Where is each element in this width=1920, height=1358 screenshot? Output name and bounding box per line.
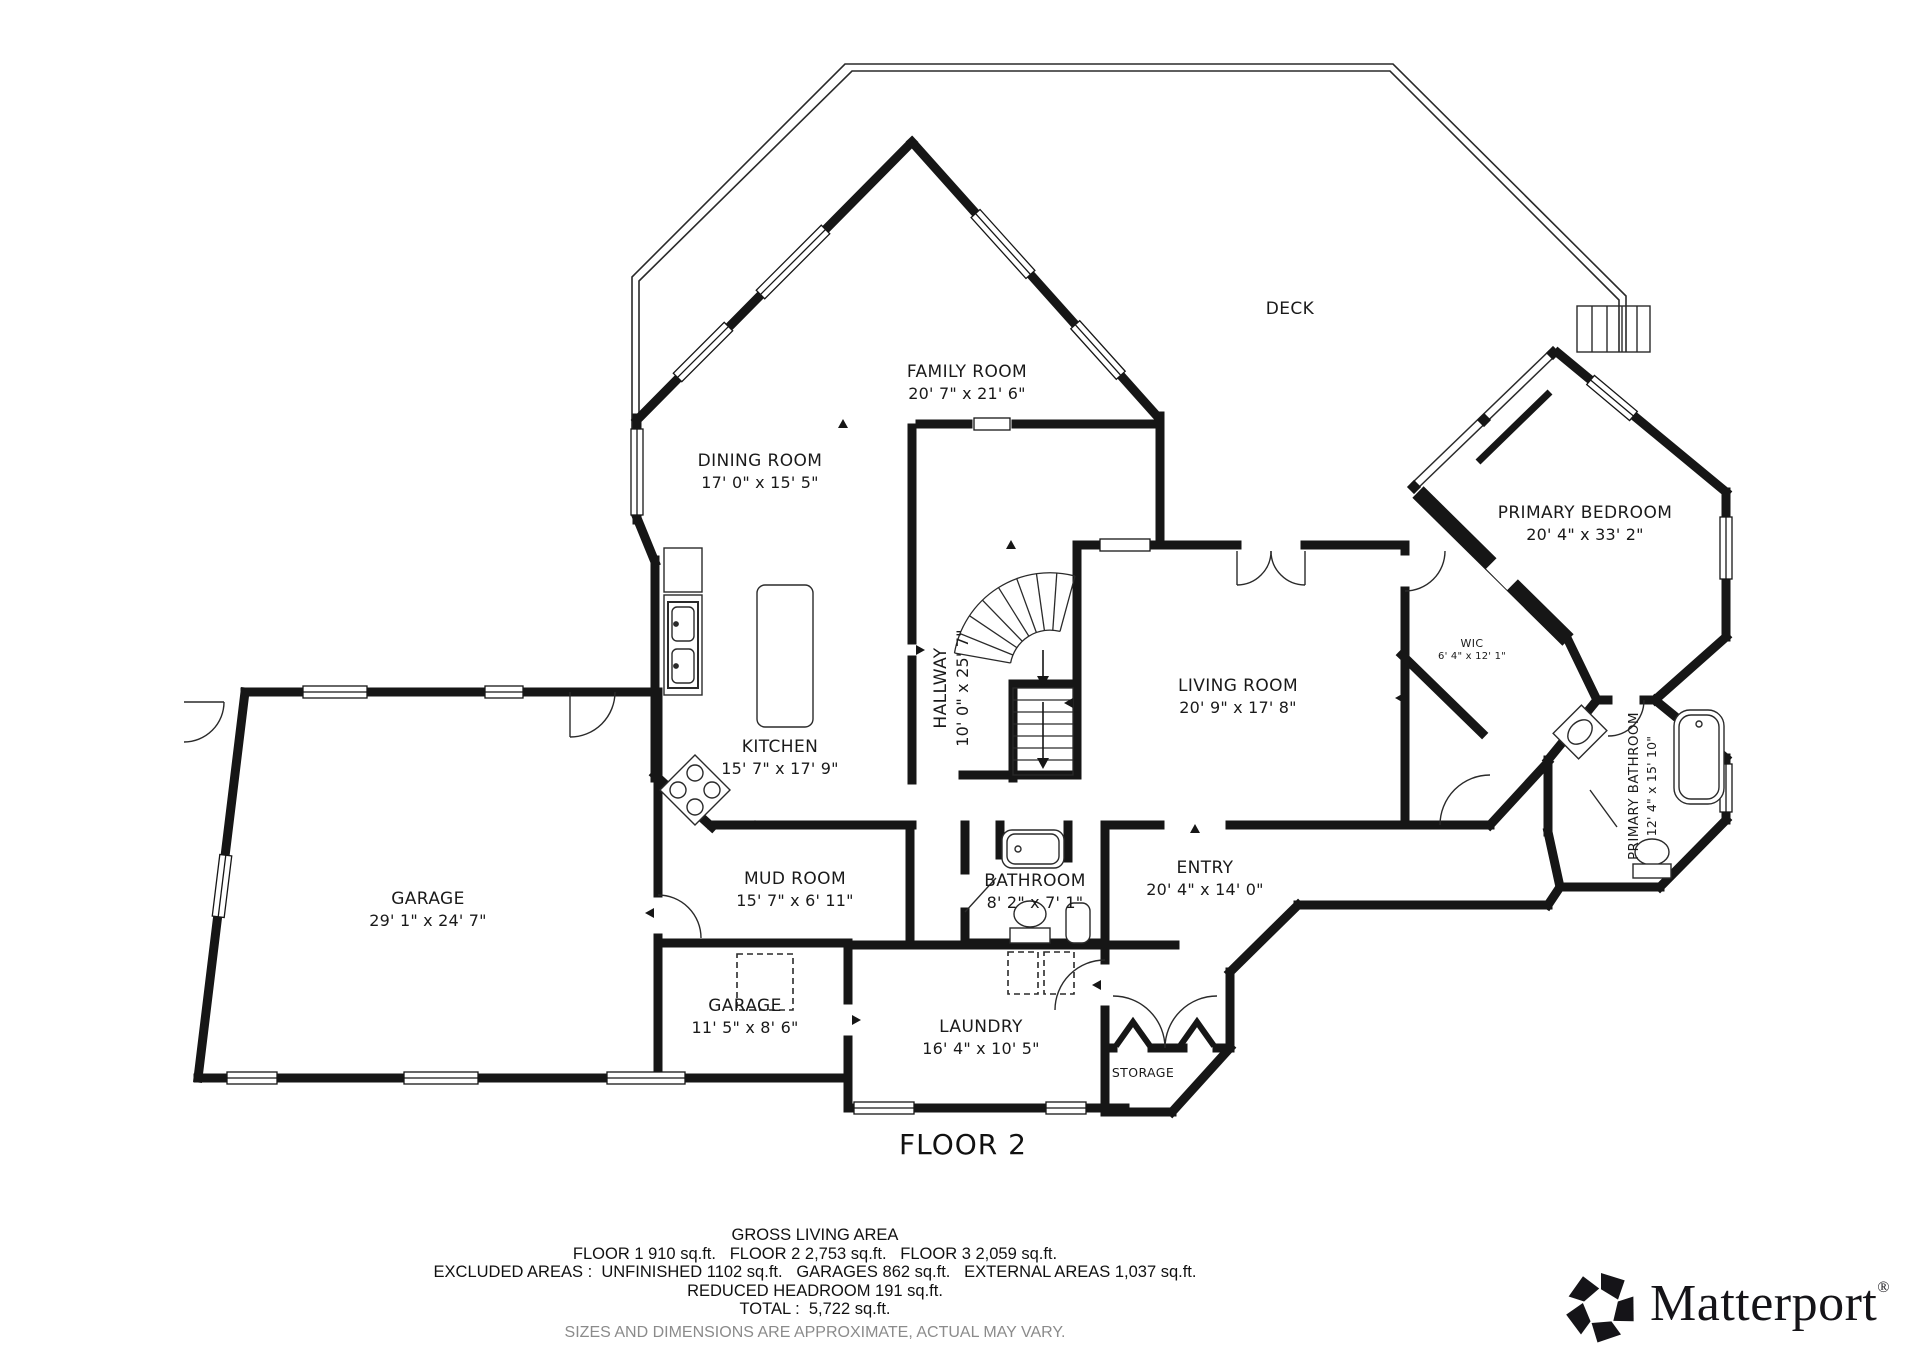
room-label-storage: STORAGE xyxy=(993,1063,1293,1083)
matterport-wordmark: Matterport® xyxy=(1650,1274,1890,1333)
gross-living-area-title: GROSS LIVING AREA xyxy=(315,1226,1315,1245)
room-name: DECK xyxy=(1140,299,1440,319)
floor-areas-line: FLOOR 1 910 sq.ft. FLOOR 2 2,753 sq.ft. … xyxy=(315,1245,1315,1264)
room-dims: 12' 4" x 15' 10" xyxy=(1643,636,1660,936)
floor-plan-page: FAMILY ROOM20' 7" x 21' 6" DINING ROOM17… xyxy=(0,0,1920,1358)
registered-mark: ® xyxy=(1877,1279,1890,1296)
room-name: WIC xyxy=(1322,637,1622,650)
room-label-primary-bedroom: PRIMARY BEDROOM20' 4" x 33' 2" xyxy=(1435,503,1735,545)
reduced-headroom-line: REDUCED HEADROOM 191 sq.ft. xyxy=(315,1282,1315,1301)
room-label-family-room: FAMILY ROOM20' 7" x 21' 6" xyxy=(817,362,1117,404)
room-label-garage: GARAGE29' 1" x 24' 7" xyxy=(278,889,578,931)
room-name: KITCHEN xyxy=(630,737,930,758)
room-dims: 20' 4" x 14' 0" xyxy=(1055,879,1355,900)
room-dims: 10' 0" x 25' 7" xyxy=(952,538,973,838)
room-dims: 20' 4" x 33' 2" xyxy=(1435,524,1735,545)
room-dims: 15' 7" x 17' 9" xyxy=(630,758,930,779)
kitchen-fixtures xyxy=(660,548,813,825)
room-label-entry: ENTRY20' 4" x 14' 0" xyxy=(1055,858,1355,900)
total-area-line: TOTAL : 5,722 sq.ft. xyxy=(315,1300,1315,1319)
room-name: GARAGE xyxy=(278,889,578,910)
room-name: LAUNDRY xyxy=(831,1017,1131,1038)
room-dims: 29' 1" x 24' 7" xyxy=(278,910,578,931)
room-name: FAMILY ROOM xyxy=(817,362,1117,383)
room-label-deck: DECK xyxy=(1140,299,1440,319)
room-label-primary-bathroom: PRIMARY BATHROOM12' 4" x 15' 10" xyxy=(1626,636,1660,936)
toilet-icon xyxy=(1010,928,1050,943)
room-label-dining-room: DINING ROOM17' 0" x 15' 5" xyxy=(610,451,910,493)
room-name: PRIMARY BATHROOM xyxy=(1626,636,1643,936)
disclaimer-text: SIZES AND DIMENSIONS ARE APPROXIMATE, AC… xyxy=(315,1324,1315,1343)
room-name: STORAGE xyxy=(993,1063,1293,1083)
room-name: PRIMARY BEDROOM xyxy=(1435,503,1735,524)
room-dims: 16' 4" x 10' 5" xyxy=(831,1038,1131,1059)
matterport-logo-icon xyxy=(1564,1270,1638,1344)
room-label-wic: WIC6' 4" x 12' 1" xyxy=(1322,637,1622,663)
matterport-logo: Matterport® xyxy=(1564,1266,1920,1352)
area-summary: GROSS LIVING AREA FLOOR 1 910 sq.ft. FLO… xyxy=(315,1226,1315,1342)
room-name: DINING ROOM xyxy=(610,451,910,472)
bedroom-window-wall xyxy=(1407,346,1560,494)
room-label-kitchen: KITCHEN15' 7" x 17' 9" xyxy=(630,737,930,779)
room-name: GARAGE xyxy=(595,996,895,1017)
room-name: ENTRY xyxy=(1055,858,1355,879)
kitchen-island-icon xyxy=(757,585,813,727)
room-name: LIVING ROOM xyxy=(1088,676,1388,697)
deck-railing xyxy=(632,64,1626,430)
excluded-areas-line: EXCLUDED AREAS : UNFINISHED 1102 sq.ft. … xyxy=(315,1263,1315,1282)
room-name: HALLWAY xyxy=(931,538,952,838)
room-dims: 17' 0" x 15' 5" xyxy=(610,472,910,493)
room-label-laundry: LAUNDRY16' 4" x 10' 5" xyxy=(831,1017,1131,1059)
room-dims: 20' 9" x 17' 8" xyxy=(1088,697,1388,718)
room-dims: 20' 7" x 21' 6" xyxy=(817,383,1117,404)
room-dims: 6' 4" x 12' 1" xyxy=(1322,650,1622,663)
stair-direction-arrows xyxy=(1037,650,1049,769)
floor-title: FLOOR 2 xyxy=(763,1128,1163,1161)
room-label-hallway: HALLWAY10' 0" x 25' 7" xyxy=(931,538,973,838)
room-label-living-room: LIVING ROOM20' 9" x 17' 8" xyxy=(1088,676,1388,718)
deck-stairs-icon xyxy=(1577,306,1650,352)
